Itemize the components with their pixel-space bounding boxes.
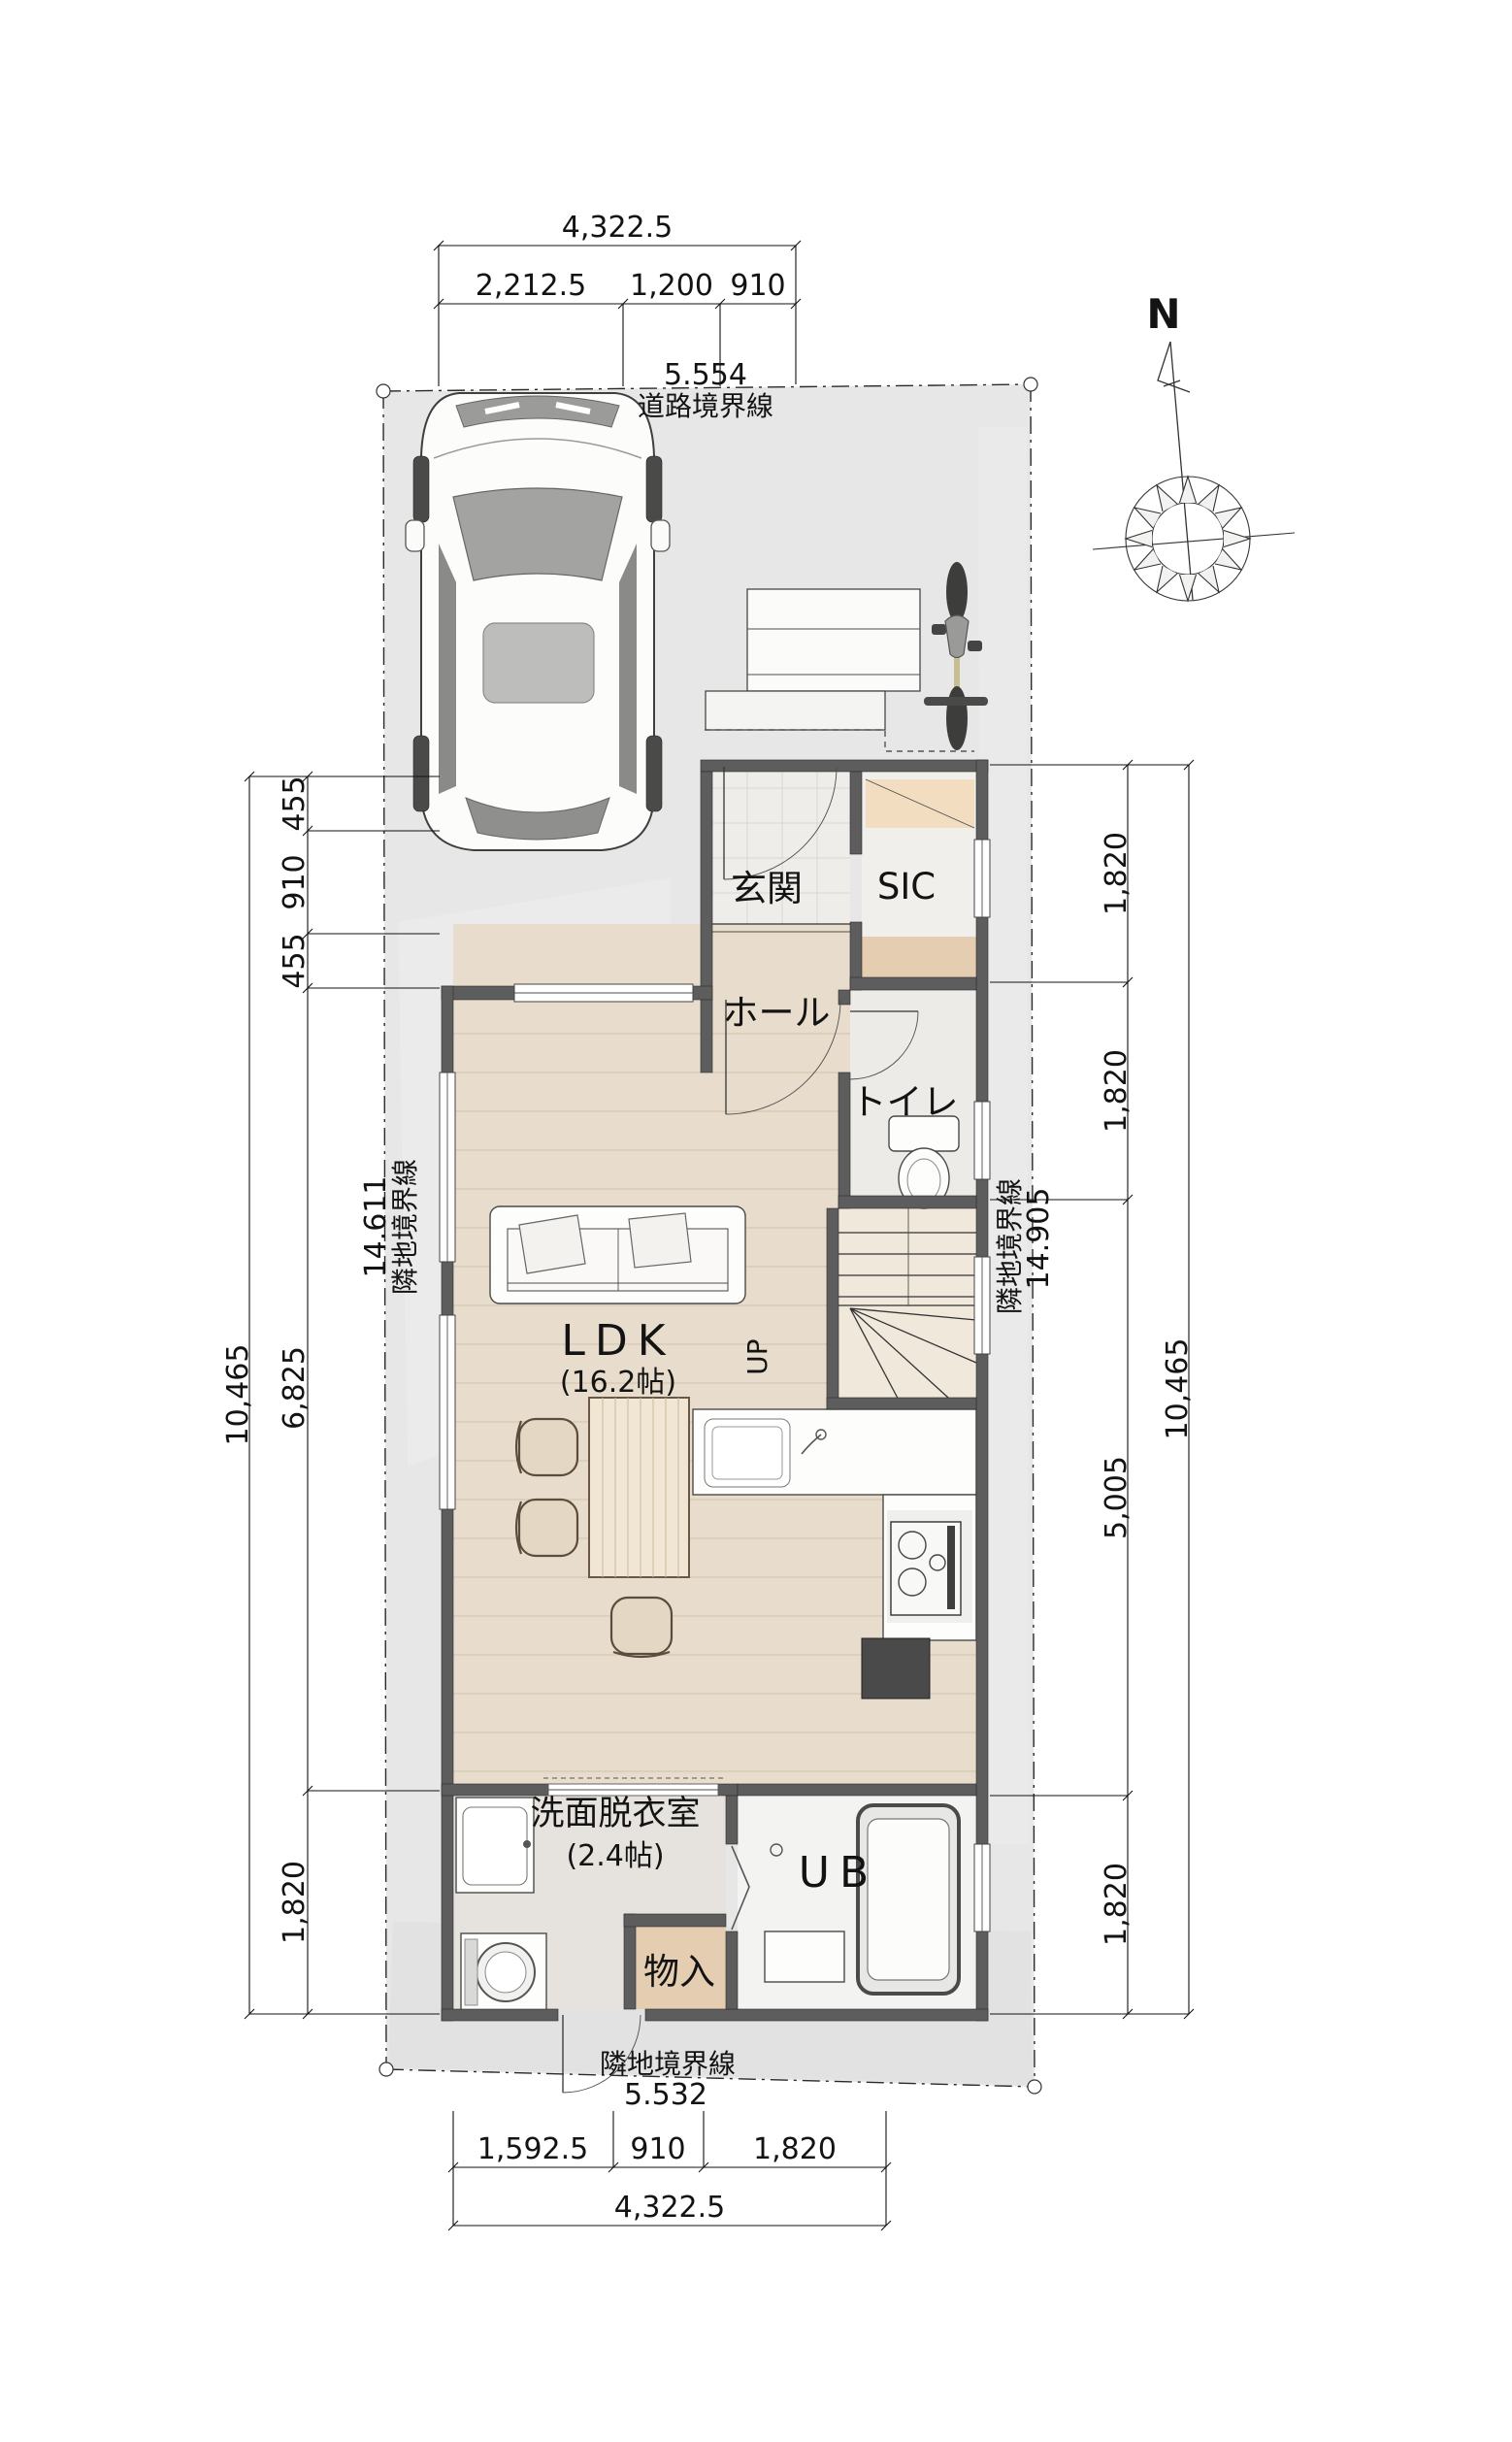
sofa: [490, 1206, 745, 1303]
dim-left-seg1: 455: [278, 775, 312, 831]
dim-right-seg3: 5,005: [1100, 1456, 1134, 1539]
bottom-boundary-length: 5.532: [624, 2078, 707, 2112]
lot-corner-marker: [1028, 2080, 1041, 2094]
dim-left-seg5: 1,820: [278, 1861, 312, 1944]
sic-lower-closet: [862, 937, 976, 977]
chair: [519, 1419, 577, 1475]
road-boundary-length: 5.554: [664, 358, 747, 392]
north-label: N: [1146, 290, 1180, 338]
bottom-boundary-label: 隣地境界線: [600, 2048, 736, 2080]
dim-right-seg2: 1,820: [1100, 1049, 1134, 1133]
sofa-pillow: [629, 1213, 691, 1268]
car-sunroof: [483, 623, 594, 703]
dim-left-seg4: 6,825: [278, 1346, 312, 1430]
road-boundary-label: 道路境界線: [638, 390, 773, 422]
lot-corner-marker: [377, 384, 390, 398]
dim-right-total: 10,465: [1161, 1338, 1195, 1440]
dim-bottom-seg2: 910: [630, 2132, 685, 2166]
dim-top-total: 4,322.5: [562, 211, 674, 245]
car-wheel: [413, 456, 429, 522]
bicycle-handlebar: [924, 697, 988, 706]
dim-top-seg1: 2,212.5: [476, 269, 587, 303]
lot-corner-marker: [379, 2062, 393, 2076]
dim-right-seg1: 1,820: [1100, 832, 1134, 915]
label-ldk-size: (16.2帖): [560, 1366, 676, 1400]
lot-corner-marker: [1024, 378, 1037, 391]
dimension-bottom: 1,592.5 910 1,820 4,322.5: [448, 2111, 891, 2230]
chair: [519, 1500, 577, 1556]
car-windshield: [453, 488, 622, 580]
cooktop-controls: [947, 1526, 955, 1609]
compass-rose: [1093, 477, 1295, 601]
floor-plan-page: 4,322.5 2,212.5 1,200 910 10,465 455 910…: [0, 0, 1512, 2442]
car-side-window: [619, 544, 637, 794]
kitchen-cabinet: [862, 1638, 930, 1699]
label-ldk: LDK: [561, 1316, 674, 1366]
left-boundary-length: 14.611: [359, 1176, 393, 1278]
dim-bottom-seg3: 1,820: [753, 2132, 837, 2166]
dim-left-total: 10,465: [221, 1344, 255, 1446]
washing-machine: [461, 1933, 546, 2011]
dim-top-seg3: 910: [730, 269, 785, 303]
sofa-pillow: [519, 1215, 585, 1273]
floor-plan-drawing: 4,322.5 2,212.5 1,200 910 10,465 455 910…: [0, 0, 1512, 2442]
right-boundary-length: 14.905: [1022, 1188, 1056, 1290]
compass: N: [1093, 290, 1295, 601]
dining-table: [589, 1398, 689, 1577]
dim-bottom-seg1: 1,592.5: [477, 2132, 589, 2166]
label-hall: ホール: [723, 992, 831, 1034]
label-storage: 物入: [643, 1951, 715, 1993]
porch-slab: [706, 691, 885, 730]
car-wheel: [646, 736, 662, 811]
north-arrow: [1170, 342, 1193, 600]
car-mirror: [651, 520, 670, 551]
vanity-sink: [456, 1798, 534, 1893]
label-bath: UB: [799, 1848, 878, 1897]
dim-left-seg3: 455: [278, 933, 312, 988]
label-genkan: 玄関: [731, 868, 803, 909]
label-sic: SIC: [877, 866, 936, 907]
dim-right-seg4: 1,820: [1100, 1863, 1134, 1946]
dim-bottom-total: 4,322.5: [614, 2191, 726, 2225]
label-toilet: トイレ: [851, 1081, 959, 1123]
label-washroom-size: (2.4帖): [566, 1839, 664, 1873]
car-side-window: [439, 544, 456, 794]
bathtub: [858, 1805, 959, 1994]
dim-left-seg2: 910: [278, 854, 312, 909]
car-mirror: [406, 520, 424, 551]
car-wheel: [646, 456, 662, 522]
left-boundary-label: 隣地境界線: [389, 1159, 421, 1295]
car-top-view: [406, 393, 670, 850]
label-washroom: 洗面脱衣室: [530, 1795, 700, 1833]
dim-top-seg2: 1,200: [630, 269, 713, 303]
label-stairs-up: UP: [741, 1338, 773, 1374]
chair: [611, 1598, 672, 1654]
car-wheel: [413, 736, 429, 811]
